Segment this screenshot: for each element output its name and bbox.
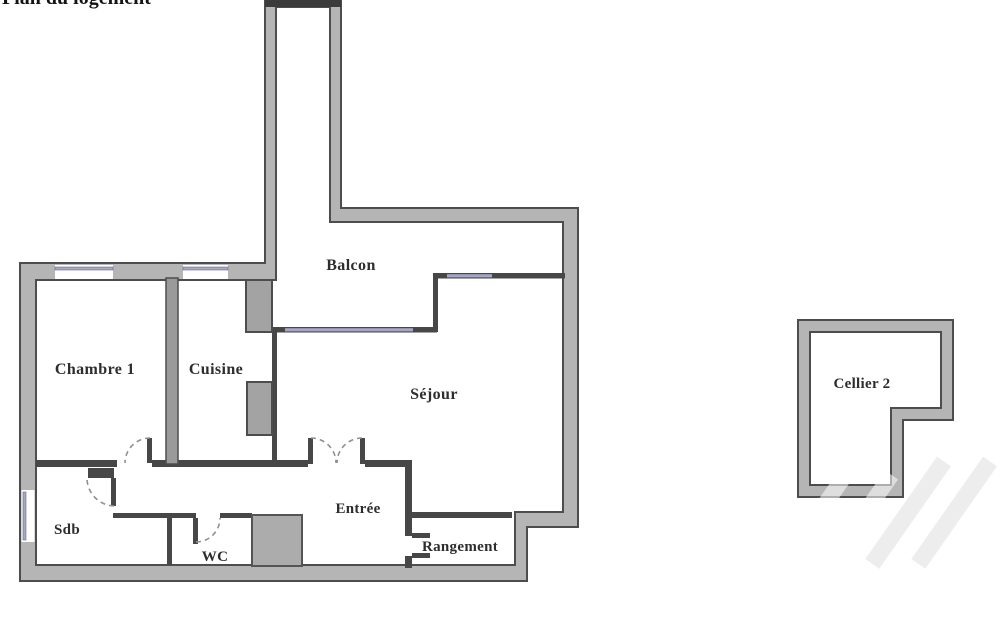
label-sdb: Sdb — [54, 522, 80, 538]
label-entree: Entrée — [335, 501, 380, 517]
window-chambre — [55, 265, 113, 279]
window-cuisine — [183, 265, 228, 279]
wall-sdb-wc-divider — [167, 518, 172, 565]
door-arc-double-right — [337, 438, 362, 463]
wall-chambre-cuisine-divider — [166, 278, 178, 464]
label-cuisine: Cuisine — [189, 361, 243, 378]
floor-plan-canvas: Plan du logement — [0, 0, 1000, 617]
label-balcon: Balcon — [326, 257, 376, 274]
label-rangement: Rangement — [422, 539, 498, 555]
window-balcon-lower — [285, 328, 413, 331]
wall-hall-north-east — [365, 460, 412, 467]
wall-corridor-south-west — [113, 513, 196, 518]
wall-corridor-south-east — [220, 513, 252, 518]
window-balcon-upper — [447, 274, 492, 277]
rangement-door-jamb-top — [412, 533, 430, 538]
door-leaf-double-left — [308, 438, 313, 464]
door-arc-wc — [196, 518, 220, 542]
floor-plan-drawing: Chambre 1 Cuisine Balcon Séjour Sdb WC E… — [0, 0, 1000, 617]
shaft-box-next-to-wc — [252, 515, 302, 566]
door-arc-double-left — [311, 438, 336, 463]
duct-cuisine-upper — [246, 280, 272, 332]
balcony-shaft-cut-edge — [265, 0, 341, 7]
door-leaf-chambre — [147, 438, 152, 463]
wall-sdb-vestibule-stub — [88, 468, 114, 478]
cropped-page-title: Plan du logement — [0, 0, 190, 10]
door-arc-chambre — [125, 438, 150, 463]
label-wc: WC — [202, 549, 228, 565]
door-leaf-sdb — [111, 478, 116, 506]
door-leaf-wc — [193, 518, 198, 544]
wall-balcon-sejour-step — [433, 273, 438, 332]
cropped-page-title-text: Plan du logement — [2, 0, 151, 10]
wall-hall-north-west — [36, 460, 117, 467]
wall-rangement-west-lower — [405, 556, 412, 568]
wall-rangement-north — [412, 512, 512, 518]
door-arc-sdb — [87, 478, 114, 506]
duct-cuisine-lower — [247, 382, 272, 435]
apartment-outer-wall — [20, 0, 578, 581]
label-chambre1: Chambre 1 — [55, 361, 135, 378]
label-sejour: Séjour — [410, 386, 458, 403]
label-cellier: Cellier 2 — [834, 376, 891, 392]
wall-entree-sejour-divider — [405, 467, 412, 536]
window-sdb — [22, 490, 35, 542]
door-leaf-double-right — [360, 438, 365, 464]
